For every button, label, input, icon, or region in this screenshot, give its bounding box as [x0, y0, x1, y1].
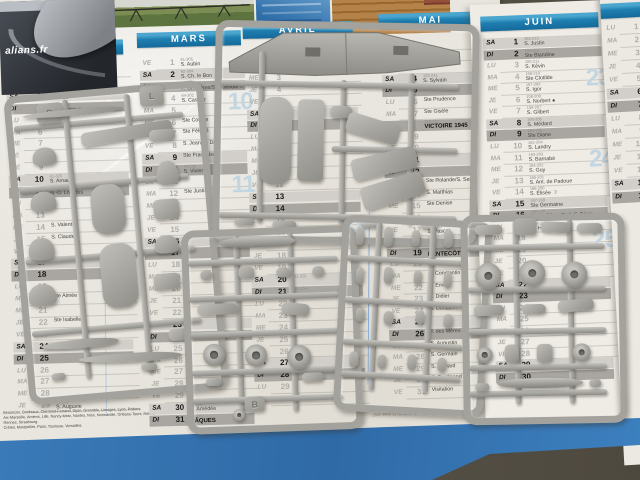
day-number: 5 — [504, 83, 520, 93]
row-separator — [626, 148, 640, 151]
calendar-day-row: MA2 — [606, 34, 640, 48]
wheel-hub — [528, 269, 536, 277]
day-abbrev: LU — [490, 143, 499, 150]
wheel-hub — [237, 413, 241, 417]
day-abbrev: SA — [614, 180, 623, 187]
day-abbrev: SA — [143, 71, 152, 78]
day-abbrev: VE — [142, 60, 151, 67]
plastic-part — [383, 267, 393, 284]
sprue-wing-parts — [210, 14, 474, 241]
plastic-part — [197, 303, 237, 315]
row-separator — [620, 45, 640, 48]
wheel-hub — [482, 352, 487, 357]
photo-scene: Besançon, Bordeaux, Clermont-Ferrand, Di… — [0, 0, 640, 480]
row-separator — [625, 135, 640, 138]
sprue-letter-pad: B — [245, 396, 266, 412]
plastic-part — [522, 304, 546, 314]
day-abbrev: DI — [615, 193, 622, 200]
day-abbrev: LU — [487, 62, 496, 69]
day-abbrev: LU — [611, 115, 620, 122]
calendar-day-row: DI7 — [609, 99, 640, 113]
day-number: 4 — [503, 72, 519, 82]
plastic-part — [153, 272, 180, 290]
plastic-part — [377, 354, 387, 368]
day-number: 2 — [623, 35, 639, 45]
calendar-day-row: ME3 — [607, 47, 640, 61]
plastic-part — [383, 311, 394, 326]
day-abbrev: MA — [487, 74, 497, 81]
plastic-part — [206, 378, 222, 387]
calendar-day-row: VE12 — [613, 164, 640, 178]
day-number: 11 — [506, 153, 522, 163]
plastic-part — [312, 266, 324, 276]
plastic-part — [349, 351, 359, 367]
plastic-part — [355, 307, 365, 321]
day-number: 2 — [502, 49, 518, 59]
day-number: 1 — [502, 37, 518, 47]
day-abbrev: MA — [612, 128, 622, 136]
day-abbrev: JE — [491, 178, 499, 185]
plastic-part — [505, 344, 519, 362]
plastic-part — [276, 267, 290, 277]
row-separator — [621, 57, 640, 60]
day-abbrev: ME — [608, 50, 618, 58]
sprue-letter-pad: L — [139, 85, 165, 107]
day-number: 6 — [504, 95, 520, 105]
day-abbrev: ME — [488, 85, 498, 92]
day-number: 9 — [628, 126, 640, 136]
row-separator — [620, 32, 640, 35]
day-abbrev: DI — [486, 51, 493, 58]
day-number: 8 — [627, 113, 640, 123]
day-abbrev: VE — [492, 189, 501, 196]
day-abbrev: VE — [614, 167, 623, 174]
day-number: 4 — [624, 61, 640, 71]
calendar-day-row: LU1 — [605, 21, 640, 35]
day-abbrev: MA — [607, 37, 617, 45]
day-number: 3 — [624, 48, 640, 58]
plastic-part — [443, 272, 452, 288]
day-abbrev: JE — [608, 63, 616, 70]
day-abbrev: MA — [490, 155, 500, 162]
calendar-day-row: SA13 — [613, 177, 640, 191]
wheel-hub — [295, 353, 303, 361]
wheel-hub — [570, 270, 578, 278]
day-number: 13 — [507, 176, 523, 186]
plastic-part — [98, 242, 139, 309]
row-separator — [627, 161, 640, 164]
plastic-part — [474, 305, 504, 317]
day-number: 3 — [503, 60, 519, 70]
plastic-part — [355, 227, 364, 245]
plastic-part — [383, 227, 393, 247]
plastic-part — [537, 344, 553, 362]
day-number: 12 — [630, 165, 640, 175]
calendar-day-row: LU8 — [610, 112, 640, 126]
month-header: JUIN — [480, 12, 598, 32]
row-separator — [622, 70, 640, 73]
plastic-part — [355, 267, 364, 283]
day-number: 9 — [506, 130, 522, 140]
day-number: 1 — [622, 22, 638, 32]
day-number: 14 — [631, 191, 640, 201]
cowling-part — [32, 147, 57, 167]
plastic-part — [437, 358, 447, 372]
plastic-part — [576, 223, 602, 233]
plastic-part — [443, 314, 453, 328]
plastic-part — [589, 379, 601, 387]
day-abbrev: DI — [490, 132, 497, 139]
sprue-letter-pad — [514, 218, 536, 235]
plastic-part — [407, 354, 417, 370]
day-abbrev: ME — [612, 141, 622, 149]
calendar-day-row: SA6 — [609, 86, 640, 100]
day-abbrev: JE — [488, 97, 496, 104]
calendar-day-row: MA9 — [611, 125, 640, 139]
calendar-day-row: ME10 — [611, 138, 640, 152]
row-separator — [624, 122, 640, 125]
wheel-hub — [252, 352, 259, 359]
day-abbrev: JE — [613, 154, 621, 161]
plastic-part — [200, 270, 212, 280]
plastic-part — [474, 225, 502, 235]
plastic-part — [302, 372, 324, 382]
day-abbrev: SA — [486, 39, 495, 46]
plastic-part — [411, 230, 420, 246]
day-number: 8 — [505, 118, 521, 128]
day-abbrev: DI — [610, 102, 617, 109]
cowling-part — [154, 234, 179, 254]
day-number: 11 — [629, 152, 640, 162]
plastic-part — [153, 198, 181, 220]
day-number: 12 — [507, 164, 523, 174]
magazine-cover: alians.fr — [0, 0, 118, 95]
month-header — [600, 2, 640, 19]
wheel-hub — [579, 349, 585, 355]
plastic-part — [259, 97, 293, 186]
plastic-part — [415, 310, 425, 324]
day-number: 31 — [168, 415, 184, 424]
day-number: 13 — [630, 178, 640, 188]
magazine-url-text: alians.fr — [5, 44, 48, 56]
day-number: 7 — [505, 106, 521, 116]
plastic-part — [475, 383, 489, 391]
day-abbrev: VE — [489, 108, 498, 115]
day-number: 6 — [626, 87, 640, 97]
day-abbrev: SA — [152, 405, 161, 412]
plastic-part — [443, 230, 453, 248]
row-separator — [627, 174, 640, 177]
day-abbrev: DI — [152, 417, 159, 424]
calendar-day-row: DI14 — [614, 190, 640, 204]
day-number: 1 — [158, 58, 174, 67]
plastic-part — [149, 128, 176, 142]
day-abbrev: VE — [609, 76, 618, 83]
plastic-part — [540, 221, 571, 234]
plastic-part — [297, 99, 324, 181]
calendar-day-row: VE5 — [608, 73, 640, 87]
plastic-part — [413, 270, 422, 284]
day-number: 5 — [625, 74, 640, 84]
day-number: 30 — [168, 403, 184, 412]
calendar-day-row: JE11 — [612, 151, 640, 165]
plastic-part — [89, 183, 127, 236]
day-number: 10 — [628, 139, 640, 149]
day-number: 14 — [508, 187, 524, 197]
wheel-hub — [210, 351, 217, 358]
day-number: 7 — [626, 100, 640, 110]
day-number: 10 — [506, 141, 522, 151]
day-abbrev: LU — [606, 24, 615, 31]
day-abbrev: SA — [489, 120, 498, 127]
plastic-part — [238, 266, 254, 279]
wheel-hub — [484, 272, 492, 280]
day-abbrev: SA — [610, 89, 619, 96]
sprue-wheels-parts — [456, 205, 628, 424]
day-abbrev: ME — [491, 166, 501, 173]
row-separator — [622, 83, 640, 86]
calendar-day-row: JE4 — [607, 60, 640, 74]
